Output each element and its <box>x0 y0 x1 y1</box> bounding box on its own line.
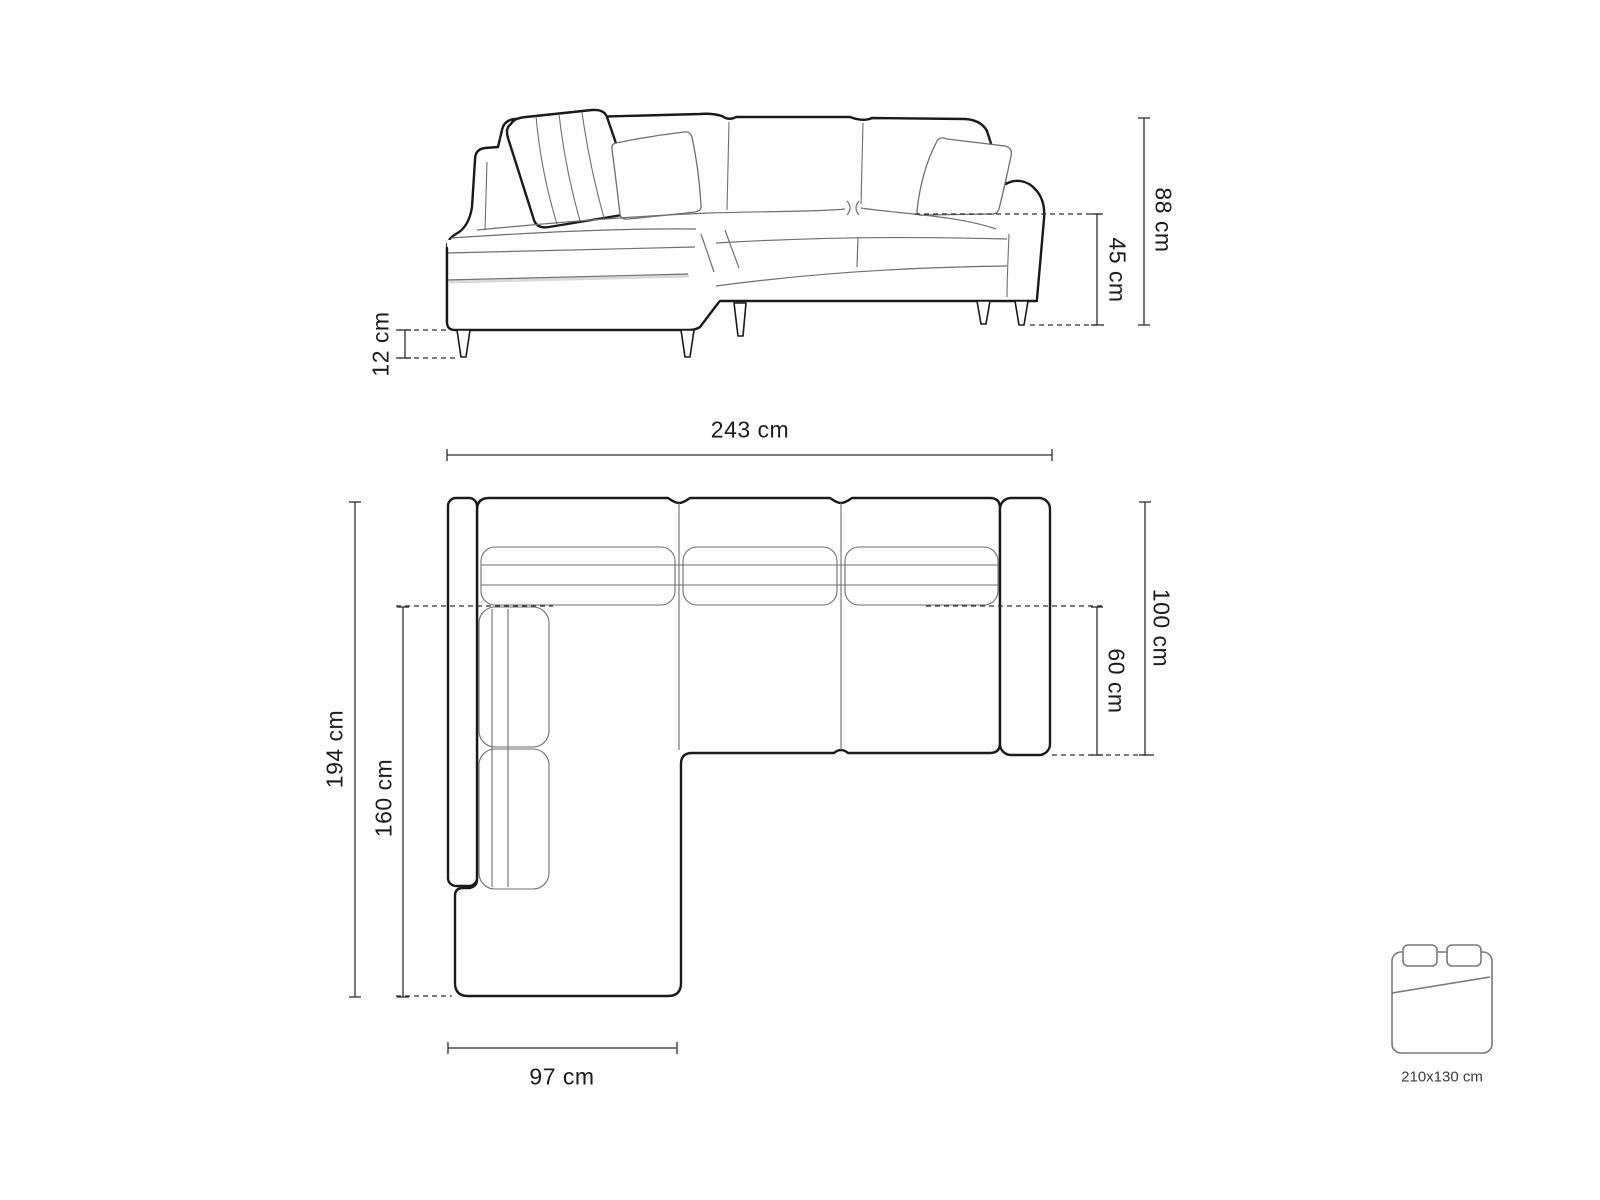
plan-right-armrest <box>1000 498 1050 755</box>
chaise-front-block <box>447 229 720 330</box>
dim-label-chaise-width: 97 cm <box>529 1064 594 1091</box>
top-view-drawing <box>448 498 1050 996</box>
bed-pillow-left <box>1403 945 1437 966</box>
sofa-dimension-diagram: 12 cm 45 cm 88 cm 243 cm 194 cm 160 cm 9… <box>0 0 1600 1200</box>
left-throw-pillow <box>612 132 701 219</box>
front-view-drawing <box>447 110 1044 357</box>
dim-label-body-depth: 100 cm <box>1148 589 1175 667</box>
dim-label-total-height: 88 cm <box>1150 187 1177 252</box>
dim-label-total-depth: 194 cm <box>322 710 349 788</box>
dim-label-leg-height: 12 cm <box>368 311 395 376</box>
plan-left-arm <box>448 498 477 886</box>
bed-pillow-right <box>1447 945 1481 966</box>
bed-icon <box>1392 945 1492 1053</box>
bed-mattress <box>1392 952 1492 1053</box>
dim-label-seat-depth: 60 cm <box>1103 648 1130 713</box>
dim-label-total-width: 243 cm <box>711 417 789 444</box>
dim-label-seat-height: 45 cm <box>1104 237 1131 302</box>
dim-label-chaise-depth: 160 cm <box>371 759 398 837</box>
bed-size-label: 210x130 cm <box>1401 1069 1483 1086</box>
plan-back-cushions <box>481 547 998 605</box>
diagram-canvas <box>0 0 1600 1200</box>
